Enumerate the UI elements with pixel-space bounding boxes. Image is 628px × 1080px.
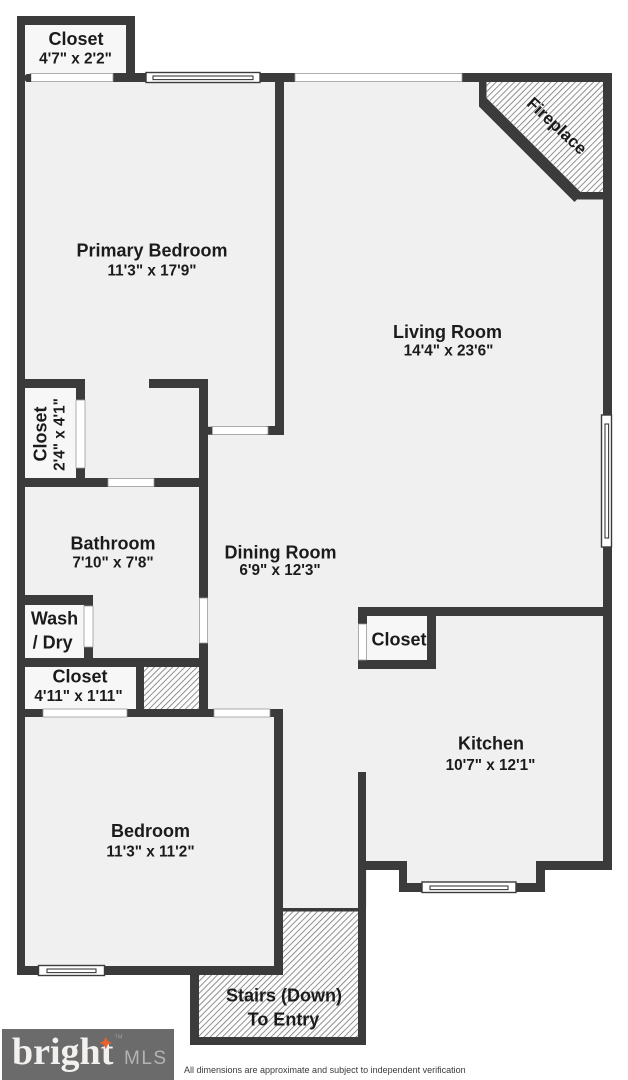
svg-text:4'7" x 2'2": 4'7" x 2'2": [39, 51, 112, 68]
svg-text:Closet: Closet: [48, 29, 103, 49]
svg-text:11'3" x 11'2": 11'3" x 11'2": [106, 844, 194, 861]
svg-text:Kitchen: Kitchen: [458, 733, 524, 753]
svg-text:Closet: Closet: [52, 667, 107, 687]
svg-text:7'10" x 7'8": 7'10" x 7'8": [72, 555, 153, 572]
svg-text:Living Room: Living Room: [393, 322, 502, 342]
svg-text:10'7" x 12'1": 10'7" x 12'1": [446, 757, 536, 774]
svg-text:Bedroom: Bedroom: [111, 821, 190, 841]
svg-text:Dining Room: Dining Room: [225, 542, 337, 562]
svg-text:Bathroom: Bathroom: [71, 533, 156, 553]
svg-text:/ Dry: / Dry: [33, 632, 73, 652]
svg-text:4'11" x 1'11": 4'11" x 1'11": [34, 688, 122, 705]
svg-text:2'4" x 4'1": 2'4" x 4'1": [52, 398, 69, 471]
svg-text:Closet: Closet: [31, 406, 51, 461]
svg-text:To Entry: To Entry: [248, 1010, 320, 1030]
svg-text:TM: TM: [115, 1035, 123, 1041]
svg-text:All dimensions are approximate: All dimensions are approximate and subje…: [184, 1065, 466, 1075]
svg-text:Stairs (Down): Stairs (Down): [226, 985, 342, 1005]
svg-text:6'9" x 12'3": 6'9" x 12'3": [239, 562, 320, 579]
svg-text:Primary Bedroom: Primary Bedroom: [76, 241, 227, 261]
svg-text:14'4" x 23'6": 14'4" x 23'6": [404, 342, 494, 359]
svg-text:11'3" x 17'9": 11'3" x 17'9": [108, 262, 197, 279]
svg-text:bright: bright: [12, 1031, 114, 1073]
svg-text:Wash: Wash: [31, 609, 78, 629]
svg-text:MLS: MLS: [124, 1048, 168, 1069]
svg-text:Closet: Closet: [371, 630, 426, 650]
